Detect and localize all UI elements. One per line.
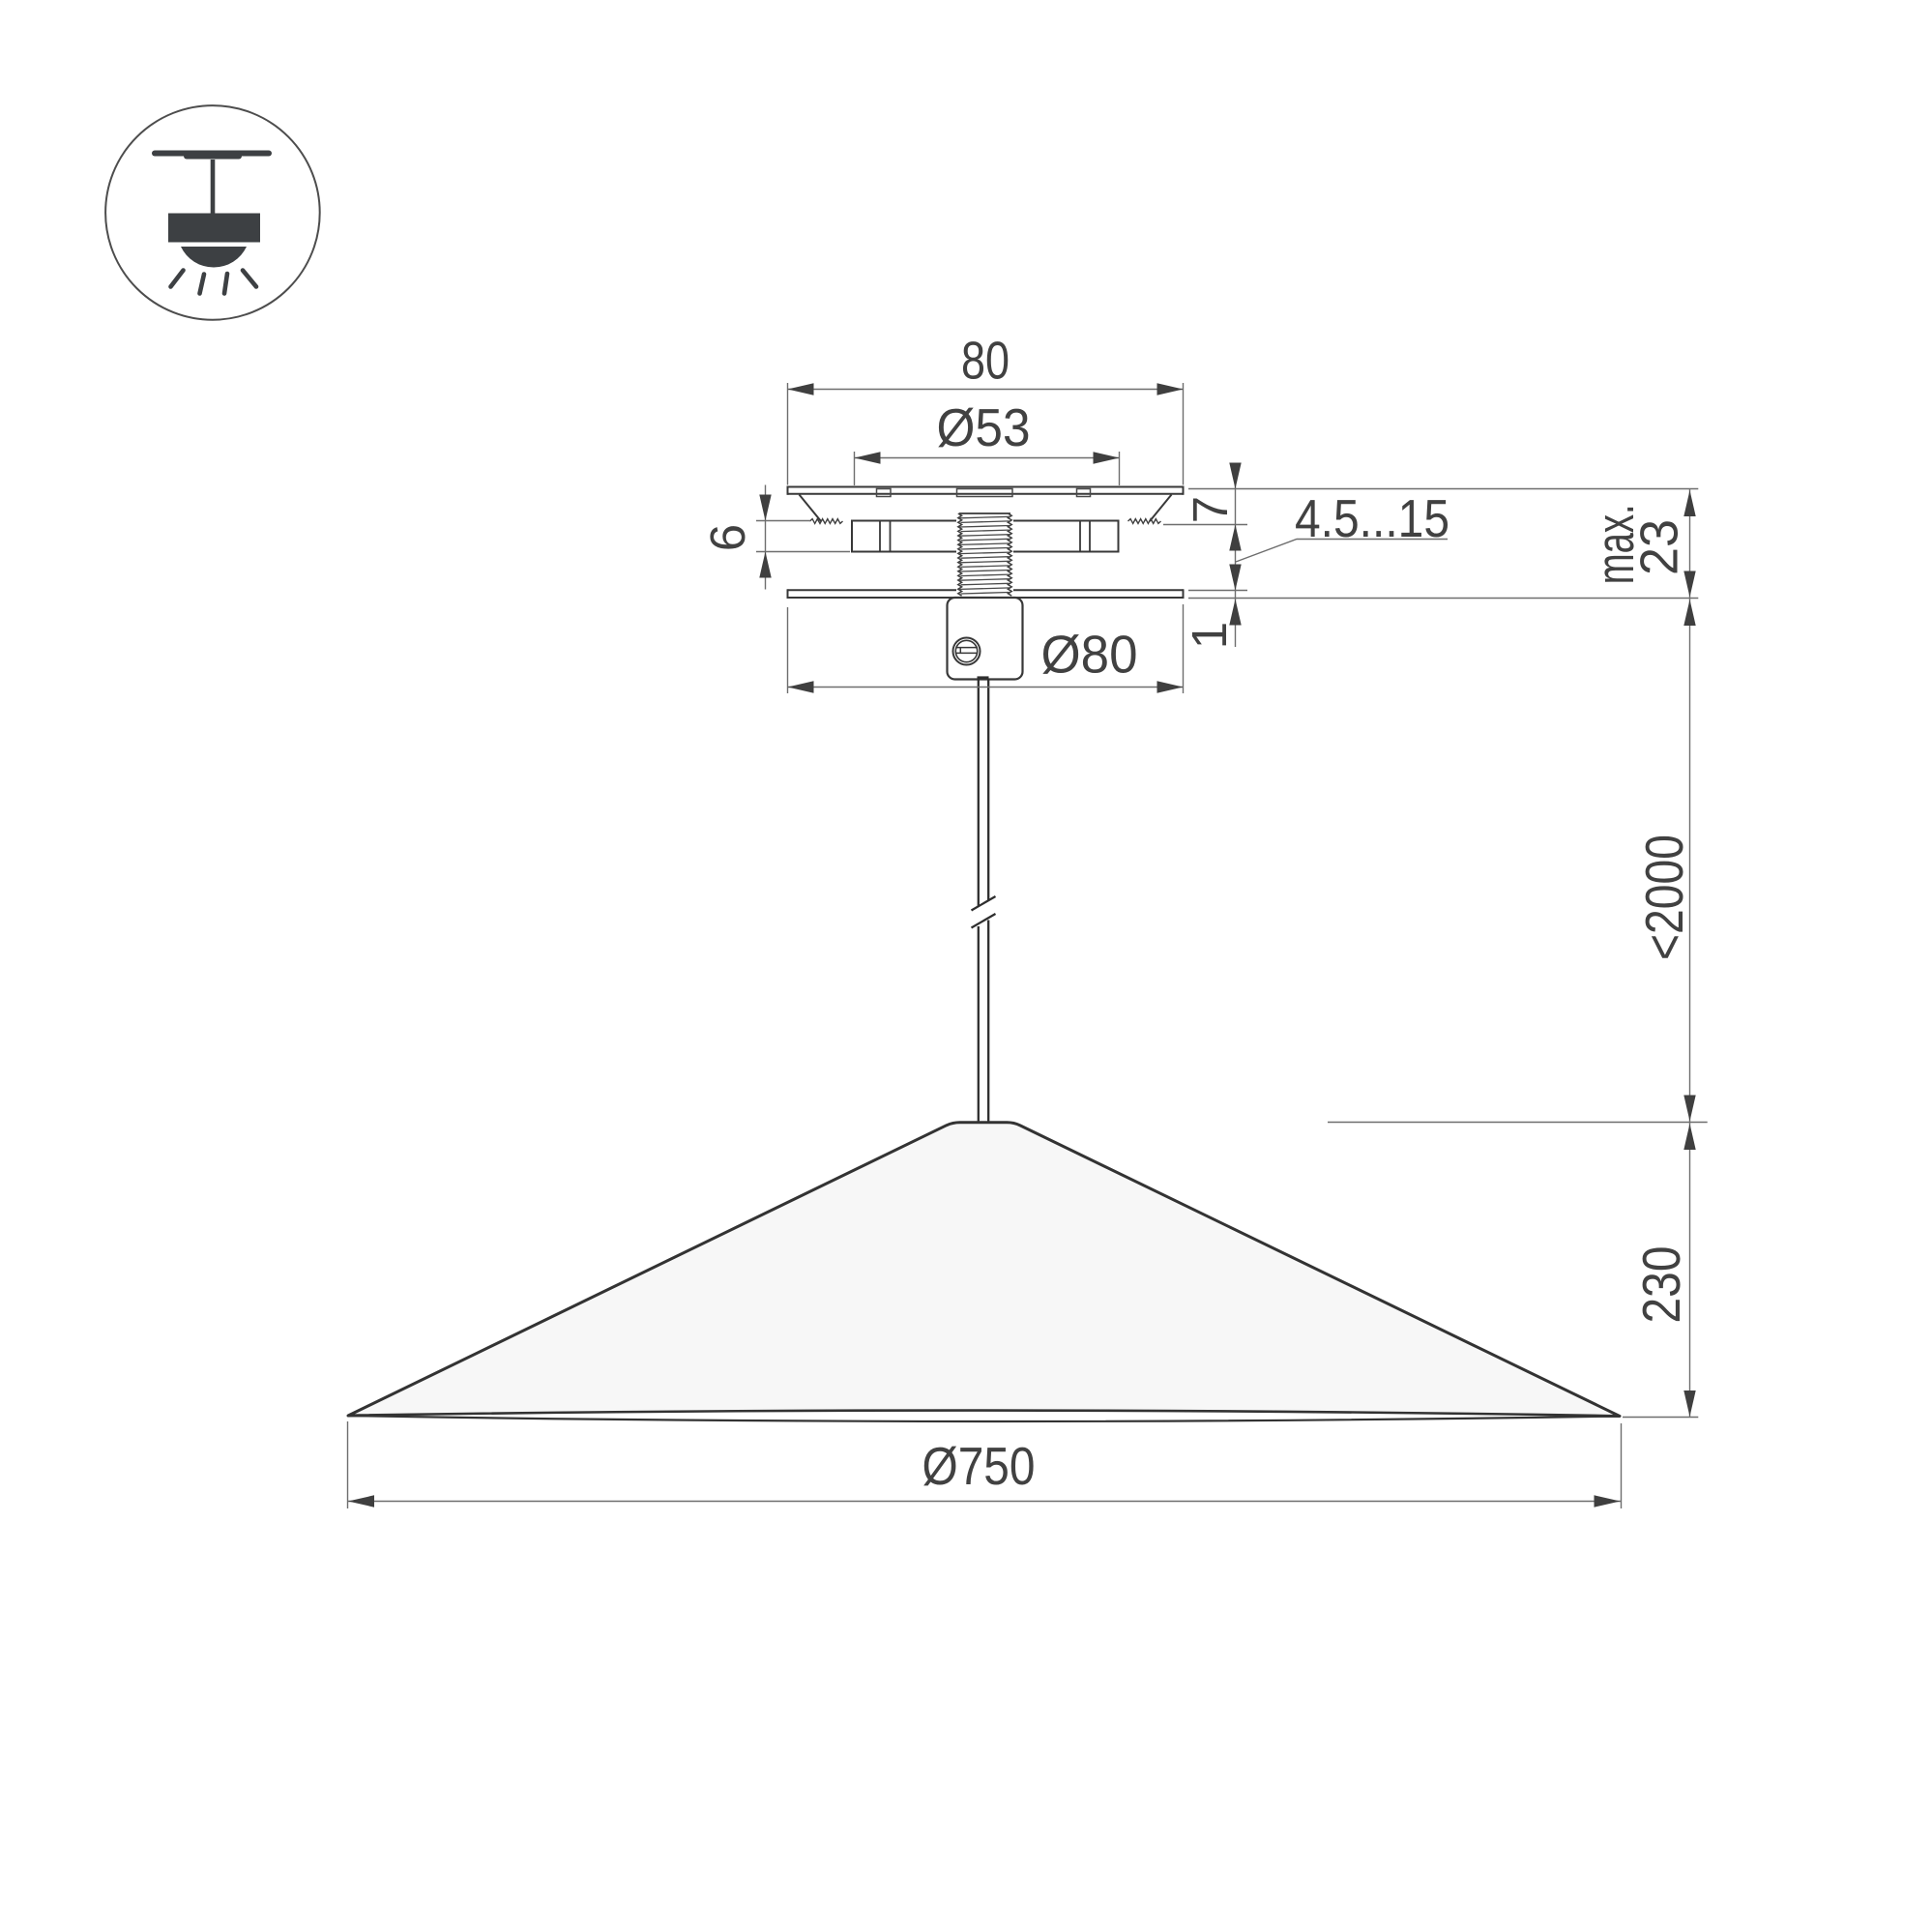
svg-text:<2000: <2000	[1634, 834, 1694, 960]
svg-text:7: 7	[1183, 496, 1238, 523]
svg-text:80: 80	[961, 331, 1010, 391]
svg-text:Ø750: Ø750	[922, 1436, 1036, 1496]
svg-text:230: 230	[1631, 1246, 1691, 1324]
svg-text:4.5...15: 4.5...15	[1295, 488, 1449, 548]
svg-text:1: 1	[1182, 622, 1237, 649]
svg-text:Ø53: Ø53	[937, 397, 1031, 457]
svg-text:23: 23	[1629, 519, 1689, 575]
svg-text:6: 6	[700, 524, 755, 551]
svg-text:Ø80: Ø80	[1041, 625, 1138, 685]
